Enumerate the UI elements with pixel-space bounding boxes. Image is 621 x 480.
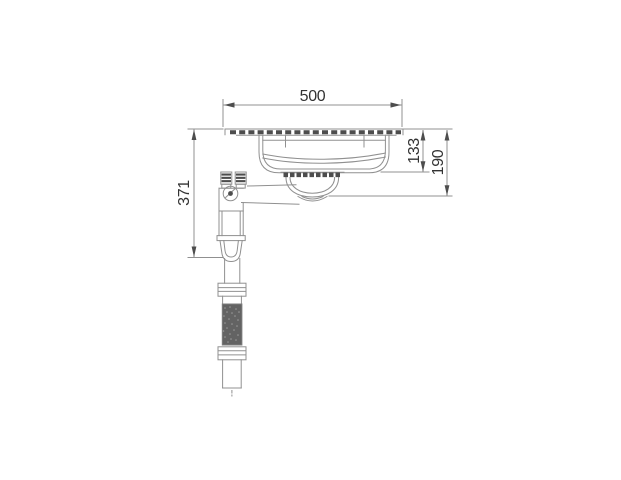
trap-coupling-ring — [217, 236, 245, 241]
drawing-canvas: 500 371 133 190 — [0, 0, 621, 480]
siphon-dome-inner — [290, 178, 335, 194]
sink-drain-technical-drawing: 500 371 133 190 — [0, 0, 621, 480]
coupling-nut-upper — [218, 283, 246, 296]
arrow-190-bottom — [445, 185, 450, 196]
bowl-bottom-slope-2 — [263, 157, 386, 163]
dim-371-label: 371 — [176, 180, 193, 206]
arrow-500-right — [391, 102, 402, 107]
dim-190-label: 190 — [430, 149, 447, 175]
dim-500-label: 500 — [300, 88, 326, 105]
trap-cup-inner — [224, 241, 239, 257]
swivel-screw-dot — [228, 191, 233, 196]
dark-hatch — [230, 132, 401, 175]
nipple-left-band — [222, 174, 232, 176]
arrow-190-top — [445, 130, 450, 141]
sink-bowl — [259, 135, 389, 173]
nipple-right-collar — [236, 184, 245, 188]
nipple-left-band — [222, 177, 232, 179]
trap-body — [217, 188, 245, 261]
dimension-labels: 500 371 133 190 — [176, 88, 447, 206]
dim-133-label: 133 — [406, 138, 423, 164]
nipple-right-band — [236, 180, 246, 182]
nipple-right-band — [236, 174, 246, 176]
pipe-bottom-edge — [242, 203, 300, 205]
horizontal-waste-pipe — [242, 185, 300, 204]
arrow-371-top — [192, 130, 197, 141]
pipe-top-edge — [248, 185, 297, 186]
trap-cup-outer — [220, 241, 242, 262]
nipple-left-band — [222, 180, 232, 182]
dark-fills — [192, 102, 450, 257]
arrow-500-left — [224, 102, 235, 107]
bowl-outer-wall — [259, 135, 389, 173]
nipple-right-band — [236, 177, 246, 179]
coupling-nut-lower — [218, 347, 246, 360]
bowl-bottom-slope-1 — [263, 153, 386, 159]
dim-371 — [188, 129, 223, 258]
arrow-371-bottom — [192, 247, 197, 258]
